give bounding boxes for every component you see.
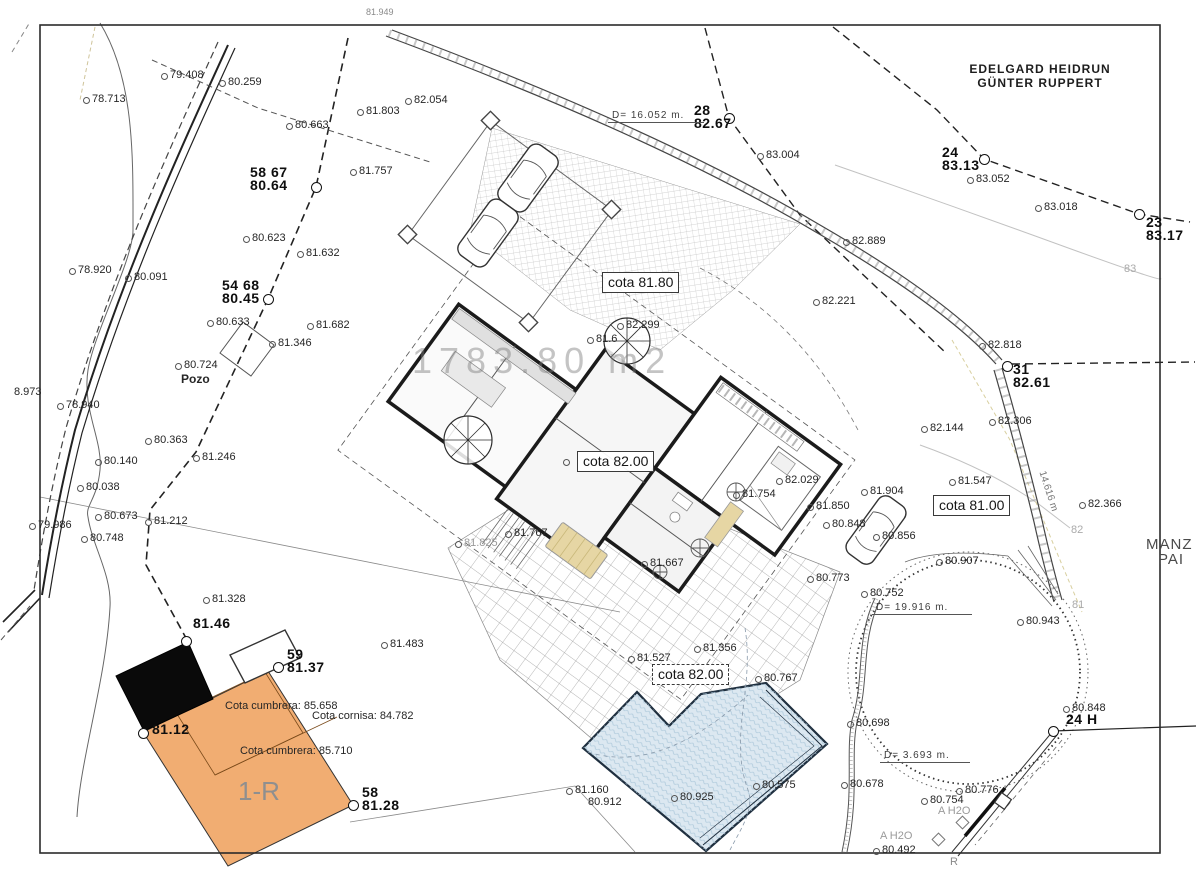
distance-label: D= 19.916 m. (872, 602, 972, 615)
survey-point-dot (807, 504, 814, 511)
survey-point-dot (286, 123, 293, 130)
elevation-label: 81.850 (816, 501, 850, 513)
survey-point-dot (95, 459, 102, 466)
owner-line-1: EDELGARD HEIDRUN (940, 62, 1140, 76)
elevation-label: 80.673 (104, 511, 138, 523)
survey-point-dot (967, 177, 974, 184)
survey-point-dot (307, 323, 314, 330)
survey-point-dot (203, 597, 210, 604)
survey-point-dot (843, 239, 850, 246)
survey-point-dot (755, 676, 762, 683)
station-marker (138, 728, 149, 739)
survey-point-dot (161, 73, 168, 80)
survey-point-dot (83, 97, 90, 104)
elevation-label: 82.221 (822, 296, 856, 308)
elevation-label: 81.825 (464, 538, 498, 550)
elevation-label: 80.724 (184, 360, 218, 372)
survey-point-dot (57, 403, 64, 410)
elevation-label: 81.767 (514, 528, 548, 540)
elevation-label: 81.356 (703, 643, 737, 655)
survey-point-dot (989, 419, 996, 426)
survey-point-dot (77, 485, 84, 492)
survey-point-dot (936, 559, 943, 566)
elevation-label: 80.663 (295, 120, 329, 132)
survey-point-dot (125, 275, 132, 282)
elevation-label: 80.907 (945, 556, 979, 568)
station-marker (273, 662, 284, 673)
elevation-label: 8.973 (14, 387, 42, 399)
survey-point-dot (566, 788, 573, 795)
elevation-label: 80.748 (90, 533, 124, 545)
survey-point-dot (455, 541, 462, 548)
elevation-label: 81.212 (154, 516, 188, 528)
station-label: 58 6780.64 (250, 166, 288, 192)
survey-point-dot (641, 561, 648, 568)
station-marker (263, 294, 274, 305)
station-marker (311, 182, 322, 193)
elevation-label: 83.018 (1044, 202, 1078, 214)
owner-name-block: EDELGARD HEIDRUN GÜNTER RUPPERT (940, 62, 1140, 90)
survey-point-dot (69, 268, 76, 275)
survey-point-dot (861, 489, 868, 496)
station-label: 3182.61 (1013, 363, 1051, 389)
survey-point-dot (979, 343, 986, 350)
elevation-label: 80.698 (856, 718, 890, 730)
survey-point-dot (694, 646, 701, 653)
station-label: 81.12 (152, 723, 190, 736)
elevation-label: 81.547 (958, 476, 992, 488)
elevation-label: 81.6 (596, 334, 617, 346)
station-marker (979, 154, 990, 165)
elevation-label: 80.767 (764, 673, 798, 685)
contour-label: 81 (1072, 600, 1084, 612)
elevation-label: 80.752 (870, 588, 904, 600)
station-marker (1134, 209, 1145, 220)
survey-point-dot (350, 169, 357, 176)
edge-text-pai: PAI (1158, 551, 1184, 568)
station-label: 2483.13 (942, 146, 980, 172)
station-marker (181, 636, 192, 647)
survey-point-dot (1079, 502, 1086, 509)
survey-point-dot (949, 479, 956, 486)
elevation-label: 81.949 (366, 8, 394, 17)
station-label: 81.46 (193, 617, 231, 630)
elevation-label: 83.004 (766, 150, 800, 162)
labels-overlay: 1783.80 m2 EDELGARD HEIDRUN GÜNTER RUPPE… (0, 0, 1200, 878)
survey-point-dot (193, 455, 200, 462)
elevation-label: 80.678 (850, 779, 884, 791)
roof-ridge-label: Cota cumbrera: 85.710 (240, 746, 353, 758)
elevation-label: 80.633 (216, 317, 250, 329)
elevation-label: 82.054 (414, 95, 448, 107)
survey-point-dot (628, 656, 635, 663)
elevation-label: 81.682 (316, 320, 350, 332)
elevation-label: 80.091 (134, 272, 168, 284)
station-label: 24 H (1066, 713, 1098, 726)
elevation-label: 80.943 (1026, 616, 1060, 628)
survey-point-dot (95, 514, 102, 521)
survey-point-dot (563, 459, 570, 466)
elevation-label: 81.803 (366, 106, 400, 118)
survey-point-dot (1017, 619, 1024, 626)
well-label: Pozo (181, 373, 210, 386)
wall-length-label: 14.616 m (1036, 470, 1059, 513)
survey-point-dot (776, 478, 783, 485)
elevation-label: 78.920 (78, 265, 112, 277)
survey-point-dot (671, 795, 678, 802)
station-label: 54 6880.45 (222, 279, 260, 305)
elevation-label: 80.363 (154, 435, 188, 447)
survey-point-dot (733, 492, 740, 499)
elevation-label: 80.856 (882, 531, 916, 543)
survey-point-dot (873, 534, 880, 541)
survey-point-dot (175, 363, 182, 370)
elevation-label: 81.328 (212, 594, 246, 606)
elevation-label: 81.904 (870, 486, 904, 498)
survey-point-dot (861, 591, 868, 598)
station-label: 5881.28 (362, 786, 400, 812)
elevation-label: 81.160 (575, 785, 609, 797)
survey-point-dot (921, 426, 928, 433)
survey-point-dot (145, 438, 152, 445)
station-marker (1048, 726, 1059, 737)
station-label: 2383.17 (1146, 216, 1184, 242)
survey-point-dot (381, 642, 388, 649)
survey-point-dot (753, 783, 760, 790)
survey-point-dot (29, 523, 36, 530)
elevation-label: 79.986 (38, 520, 72, 532)
elevation-label: 81.483 (390, 639, 424, 651)
survey-point-dot (1035, 205, 1042, 212)
area-watermark: 1783.80 m2 (412, 340, 672, 382)
elevation-label: 81.632 (306, 248, 340, 260)
elevation-label: 78.940 (66, 400, 100, 412)
survey-point-dot (297, 251, 304, 258)
elevation-label: 81.346 (278, 338, 312, 350)
survey-point-dot (505, 531, 512, 538)
survey-point-dot (807, 576, 814, 583)
elevation-label: 80.912 (588, 797, 622, 809)
elevation-label: 80.773 (816, 573, 850, 585)
survey-point-dot (405, 98, 412, 105)
survey-point-dot (823, 522, 830, 529)
elevation-label: 83.052 (976, 174, 1010, 186)
elevation-label: 82.889 (852, 236, 886, 248)
distance-label: D= 3.693 m. (880, 750, 970, 763)
elevation-label: 80.038 (86, 482, 120, 494)
survey-point-dot (873, 848, 880, 855)
survey-point-dot (357, 109, 364, 116)
survey-point-dot (219, 80, 226, 87)
elevation-label: 82.299 (626, 320, 660, 332)
roof-eave-label: Cota cornisa: 84.782 (312, 711, 414, 723)
owner-line-2: GÜNTER RUPPERT (940, 76, 1140, 90)
cota-level-box: cota 82.00 (652, 664, 729, 685)
contour-label: 83 (1124, 264, 1136, 276)
utility-label: A H2O (880, 831, 912, 843)
distance-label: D= 16.052 m. (608, 110, 704, 123)
elevation-label: 80.492 (882, 845, 916, 857)
survey-point-dot (587, 337, 594, 344)
station-marker (348, 800, 359, 811)
survey-point-dot (757, 153, 764, 160)
survey-point-dot (269, 341, 276, 348)
survey-point-dot (207, 320, 214, 327)
cota-level-box: cota 81.80 (602, 272, 679, 293)
cota-level-box: cota 82.00 (577, 451, 654, 472)
survey-point-dot (813, 299, 820, 306)
survey-point-dot (81, 536, 88, 543)
building-floors-label: 1-R (238, 778, 280, 805)
elevation-label: 81.754 (742, 489, 776, 501)
site-plan-canvas: 1783.80 m2 EDELGARD HEIDRUN GÜNTER RUPPE… (0, 0, 1200, 878)
elevation-label: 78.713 (92, 94, 126, 106)
cota-level-box: cota 81.00 (933, 495, 1010, 516)
elevation-label: 81.246 (202, 452, 236, 464)
elevation-label: 81.527 (637, 653, 671, 665)
contour-label: 82 (1071, 525, 1083, 537)
survey-point-dot (921, 798, 928, 805)
elevation-label: 82.306 (998, 416, 1032, 428)
elevation-label: 80.140 (104, 456, 138, 468)
elevation-label: 79.408 (170, 70, 204, 82)
elevation-label: 80.776 (965, 785, 999, 797)
elevation-label: 80.575 (762, 780, 796, 792)
elevation-label: 80.925 (680, 792, 714, 804)
station-label: 5981.37 (287, 648, 325, 674)
elevation-label: 82.029 (785, 475, 819, 487)
elevation-label: 81.667 (650, 558, 684, 570)
utility-label: A H2O (938, 806, 970, 818)
elevation-label: 82.144 (930, 423, 964, 435)
elevation-label: 80.848 (832, 519, 866, 531)
survey-point-dot (847, 721, 854, 728)
elevation-label: 82.366 (1088, 499, 1122, 511)
elevation-label: 80.259 (228, 77, 262, 89)
elevation-label: 82.818 (988, 340, 1022, 352)
elevation-label: 81.757 (359, 166, 393, 178)
utility-label: R (950, 857, 958, 869)
survey-point-dot (617, 323, 624, 330)
elevation-label: 80.623 (252, 233, 286, 245)
station-marker (1002, 361, 1013, 372)
survey-point-dot (145, 519, 152, 526)
survey-point-dot (841, 782, 848, 789)
survey-point-dot (243, 236, 250, 243)
